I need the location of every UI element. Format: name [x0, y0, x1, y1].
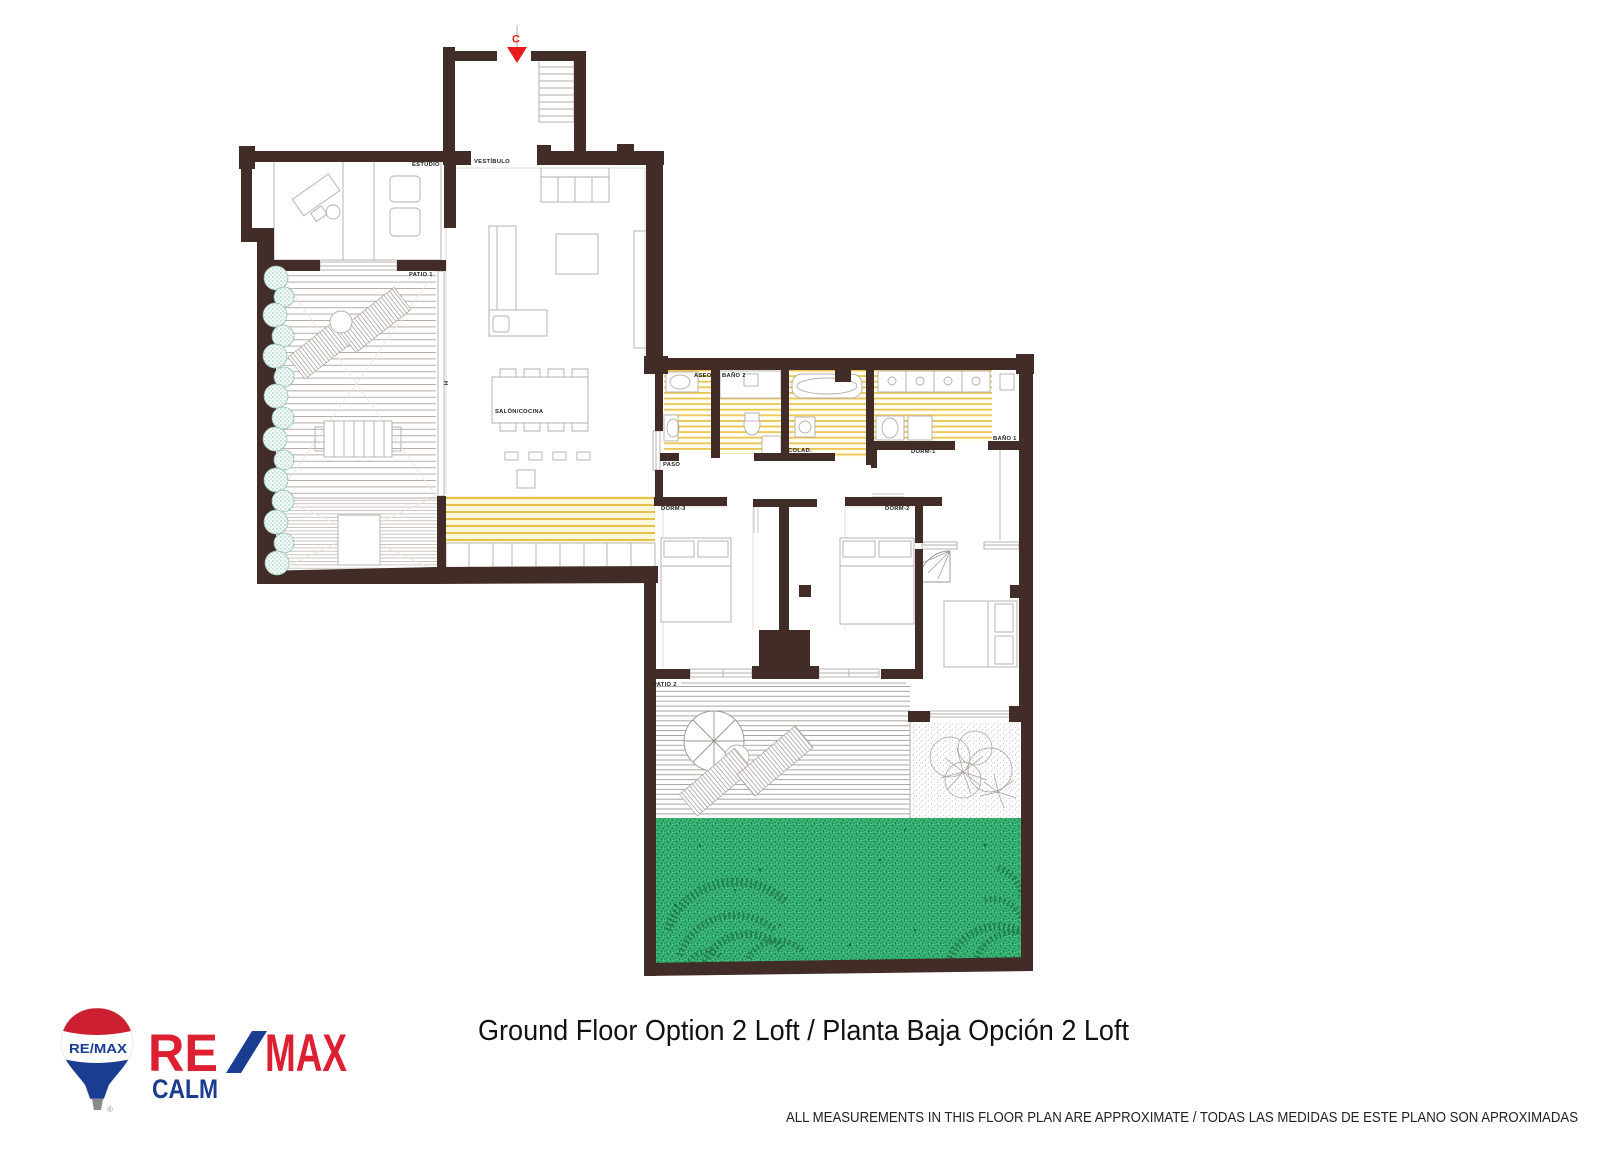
svg-text:PATIO 1: PATIO 1	[409, 272, 433, 278]
svg-text:C: C	[512, 34, 520, 46]
svg-text:PASO: PASO	[663, 462, 680, 468]
svg-text:ASEO: ASEO	[694, 373, 712, 379]
svg-text:RE/MAX: RE/MAX	[69, 1041, 127, 1056]
svg-text:DORM-3: DORM-3	[661, 506, 686, 512]
svg-text:MAX: MAX	[265, 1024, 347, 1083]
svg-text:SALÓN/COCINA: SALÓN/COCINA	[495, 407, 544, 415]
svg-text:COLAD.: COLAD.	[788, 448, 812, 454]
svg-text:Ground Floor Option 2 Loft / P: Ground Floor Option 2 Loft / Planta Baja…	[478, 1015, 1129, 1047]
svg-text:DORM-1: DORM-1	[911, 449, 936, 455]
svg-text:®: ®	[107, 1105, 113, 1114]
svg-text:PATIO 2: PATIO 2	[653, 682, 677, 688]
svg-text:CALM: CALM	[152, 1074, 218, 1104]
svg-text:H: H	[442, 381, 448, 386]
svg-text:BAÑO 2: BAÑO 2	[722, 372, 746, 379]
svg-text:VESTÍBULO: VESTÍBULO	[474, 157, 510, 165]
svg-text:ESTUDIO: ESTUDIO	[412, 162, 440, 168]
svg-text:ALL MEASUREMENTS IN THIS FLOOR: ALL MEASUREMENTS IN THIS FLOOR PLAN ARE …	[786, 1110, 1578, 1126]
svg-text:BAÑO 1: BAÑO 1	[993, 435, 1017, 442]
svg-text:DORM-2: DORM-2	[885, 506, 910, 512]
